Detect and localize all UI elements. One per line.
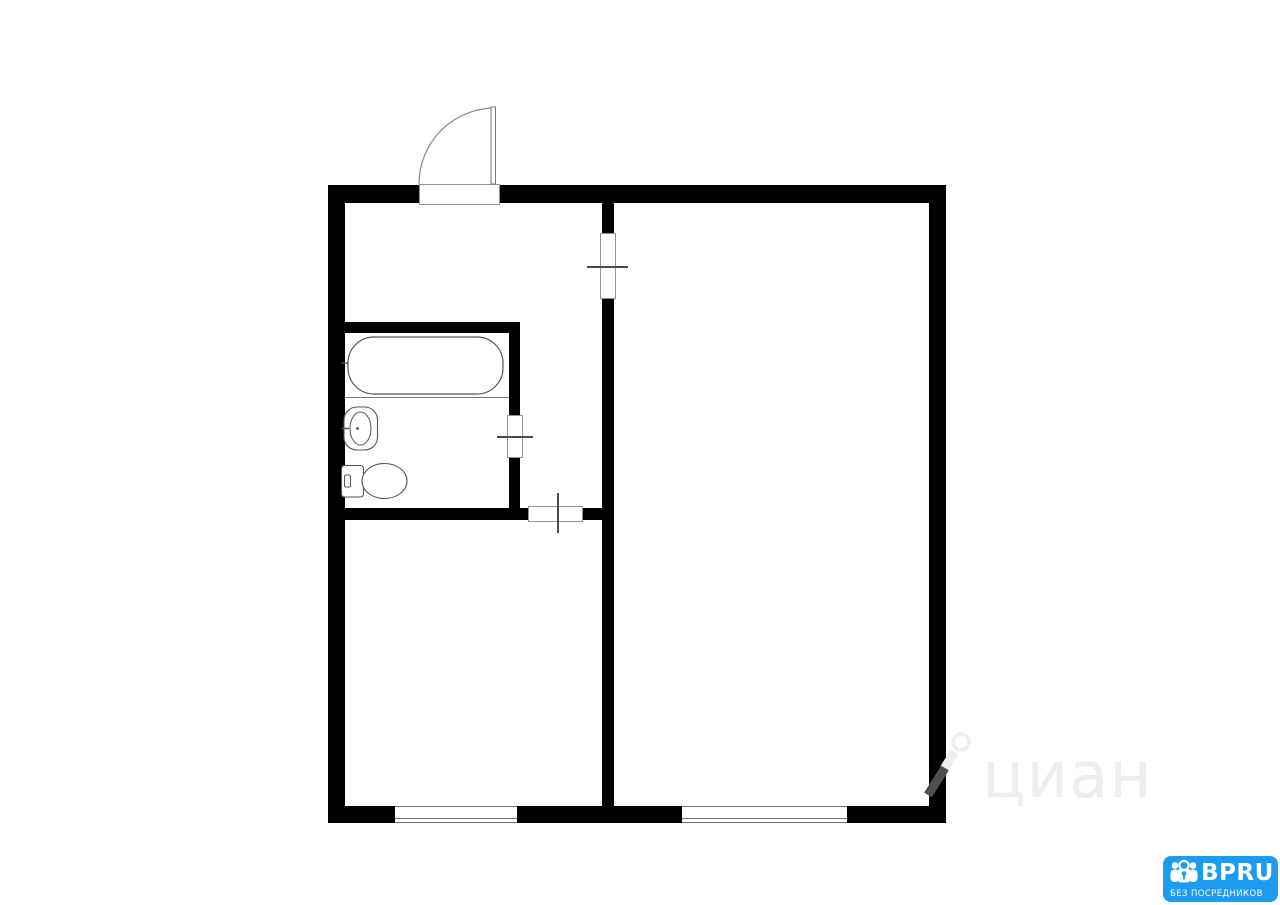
watermark-text: циан (982, 744, 1152, 808)
wall-segment (509, 458, 520, 508)
window (395, 806, 517, 823)
wall-segment (500, 185, 946, 203)
window-glass-line (395, 818, 517, 819)
bpru-logo: BPRU БЕЗ ПОСРЕДНИКОВ (1163, 856, 1278, 902)
wall-segment (847, 806, 946, 823)
wall-segment (328, 806, 395, 823)
door-tick (557, 493, 559, 533)
door-tick (587, 266, 628, 268)
wall-segment (345, 508, 528, 520)
window (682, 806, 847, 823)
wall-segment (929, 185, 946, 823)
people-lock-icon (1169, 859, 1199, 888)
door-opening (528, 506, 583, 522)
window-glass-line (682, 818, 847, 819)
wall-segment (583, 508, 602, 520)
wall-segment (602, 299, 614, 806)
wall-segment (345, 322, 520, 333)
wall-segment (328, 185, 345, 823)
wall-segment (517, 806, 682, 823)
bpru-logo-subtitle: БЕЗ ПОСРЕДНИКОВ (1170, 889, 1263, 899)
door-opening (419, 184, 500, 205)
door-tick (497, 436, 533, 438)
wall-segment (509, 333, 520, 415)
bpru-logo-title: BPRU (1201, 860, 1274, 886)
wall-segment (602, 203, 614, 233)
floor-plan-image: циан BPRU БЕЗ ПОСРЕДНИКОВ (0, 0, 1280, 905)
